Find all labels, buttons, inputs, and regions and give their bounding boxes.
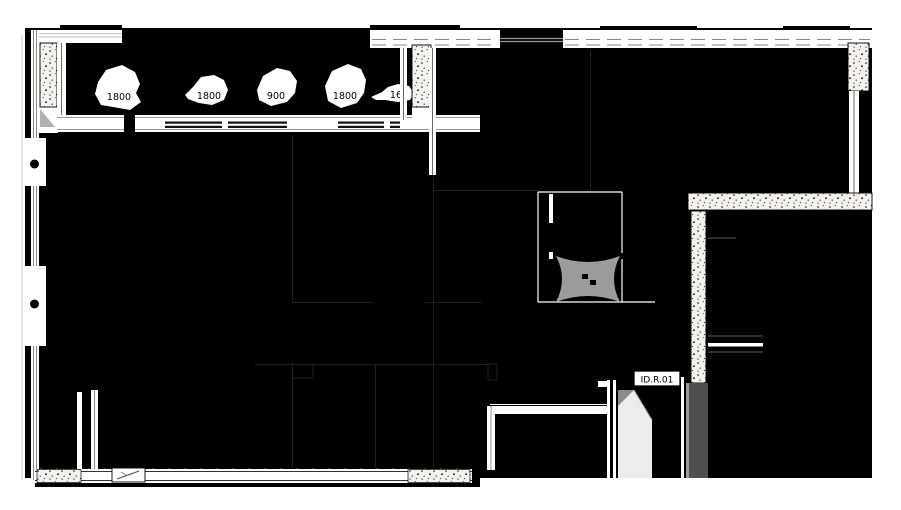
wall-anchor-dot [30, 160, 39, 169]
door-swing-box [112, 468, 145, 482]
wall-shadow-band [686, 383, 708, 478]
concrete-column-top-right [848, 43, 869, 91]
window-dimension-label: 900 [267, 91, 285, 102]
window-dimension-label: 1800 [107, 92, 131, 103]
shaft-door-slit [549, 194, 553, 223]
door-tag-label: ID.R.01 [641, 376, 674, 386]
floor-plan-canvas: 1800 1800 900 1800 167 [0, 0, 901, 510]
window-dimension-label: 1800 [197, 91, 221, 102]
door-tag: ID.R.01 [634, 371, 680, 386]
bottom-exterior-wall [35, 468, 472, 483]
concrete-wall-segment [37, 470, 81, 483]
concrete-wall-segment [408, 470, 470, 483]
wall-anchor-dot [30, 300, 39, 309]
window-dimension-label: 1800 [333, 91, 357, 102]
concrete-wall-vertical [691, 211, 706, 383]
concrete-column-mid [412, 45, 431, 107]
concrete-column-top-left [40, 43, 57, 107]
shaft-door-slit [549, 252, 553, 259]
concrete-wall-horizontal [688, 193, 872, 210]
plan-body [25, 25, 872, 487]
floor-plan-page: 1800 1800 900 1800 167 [0, 0, 901, 510]
